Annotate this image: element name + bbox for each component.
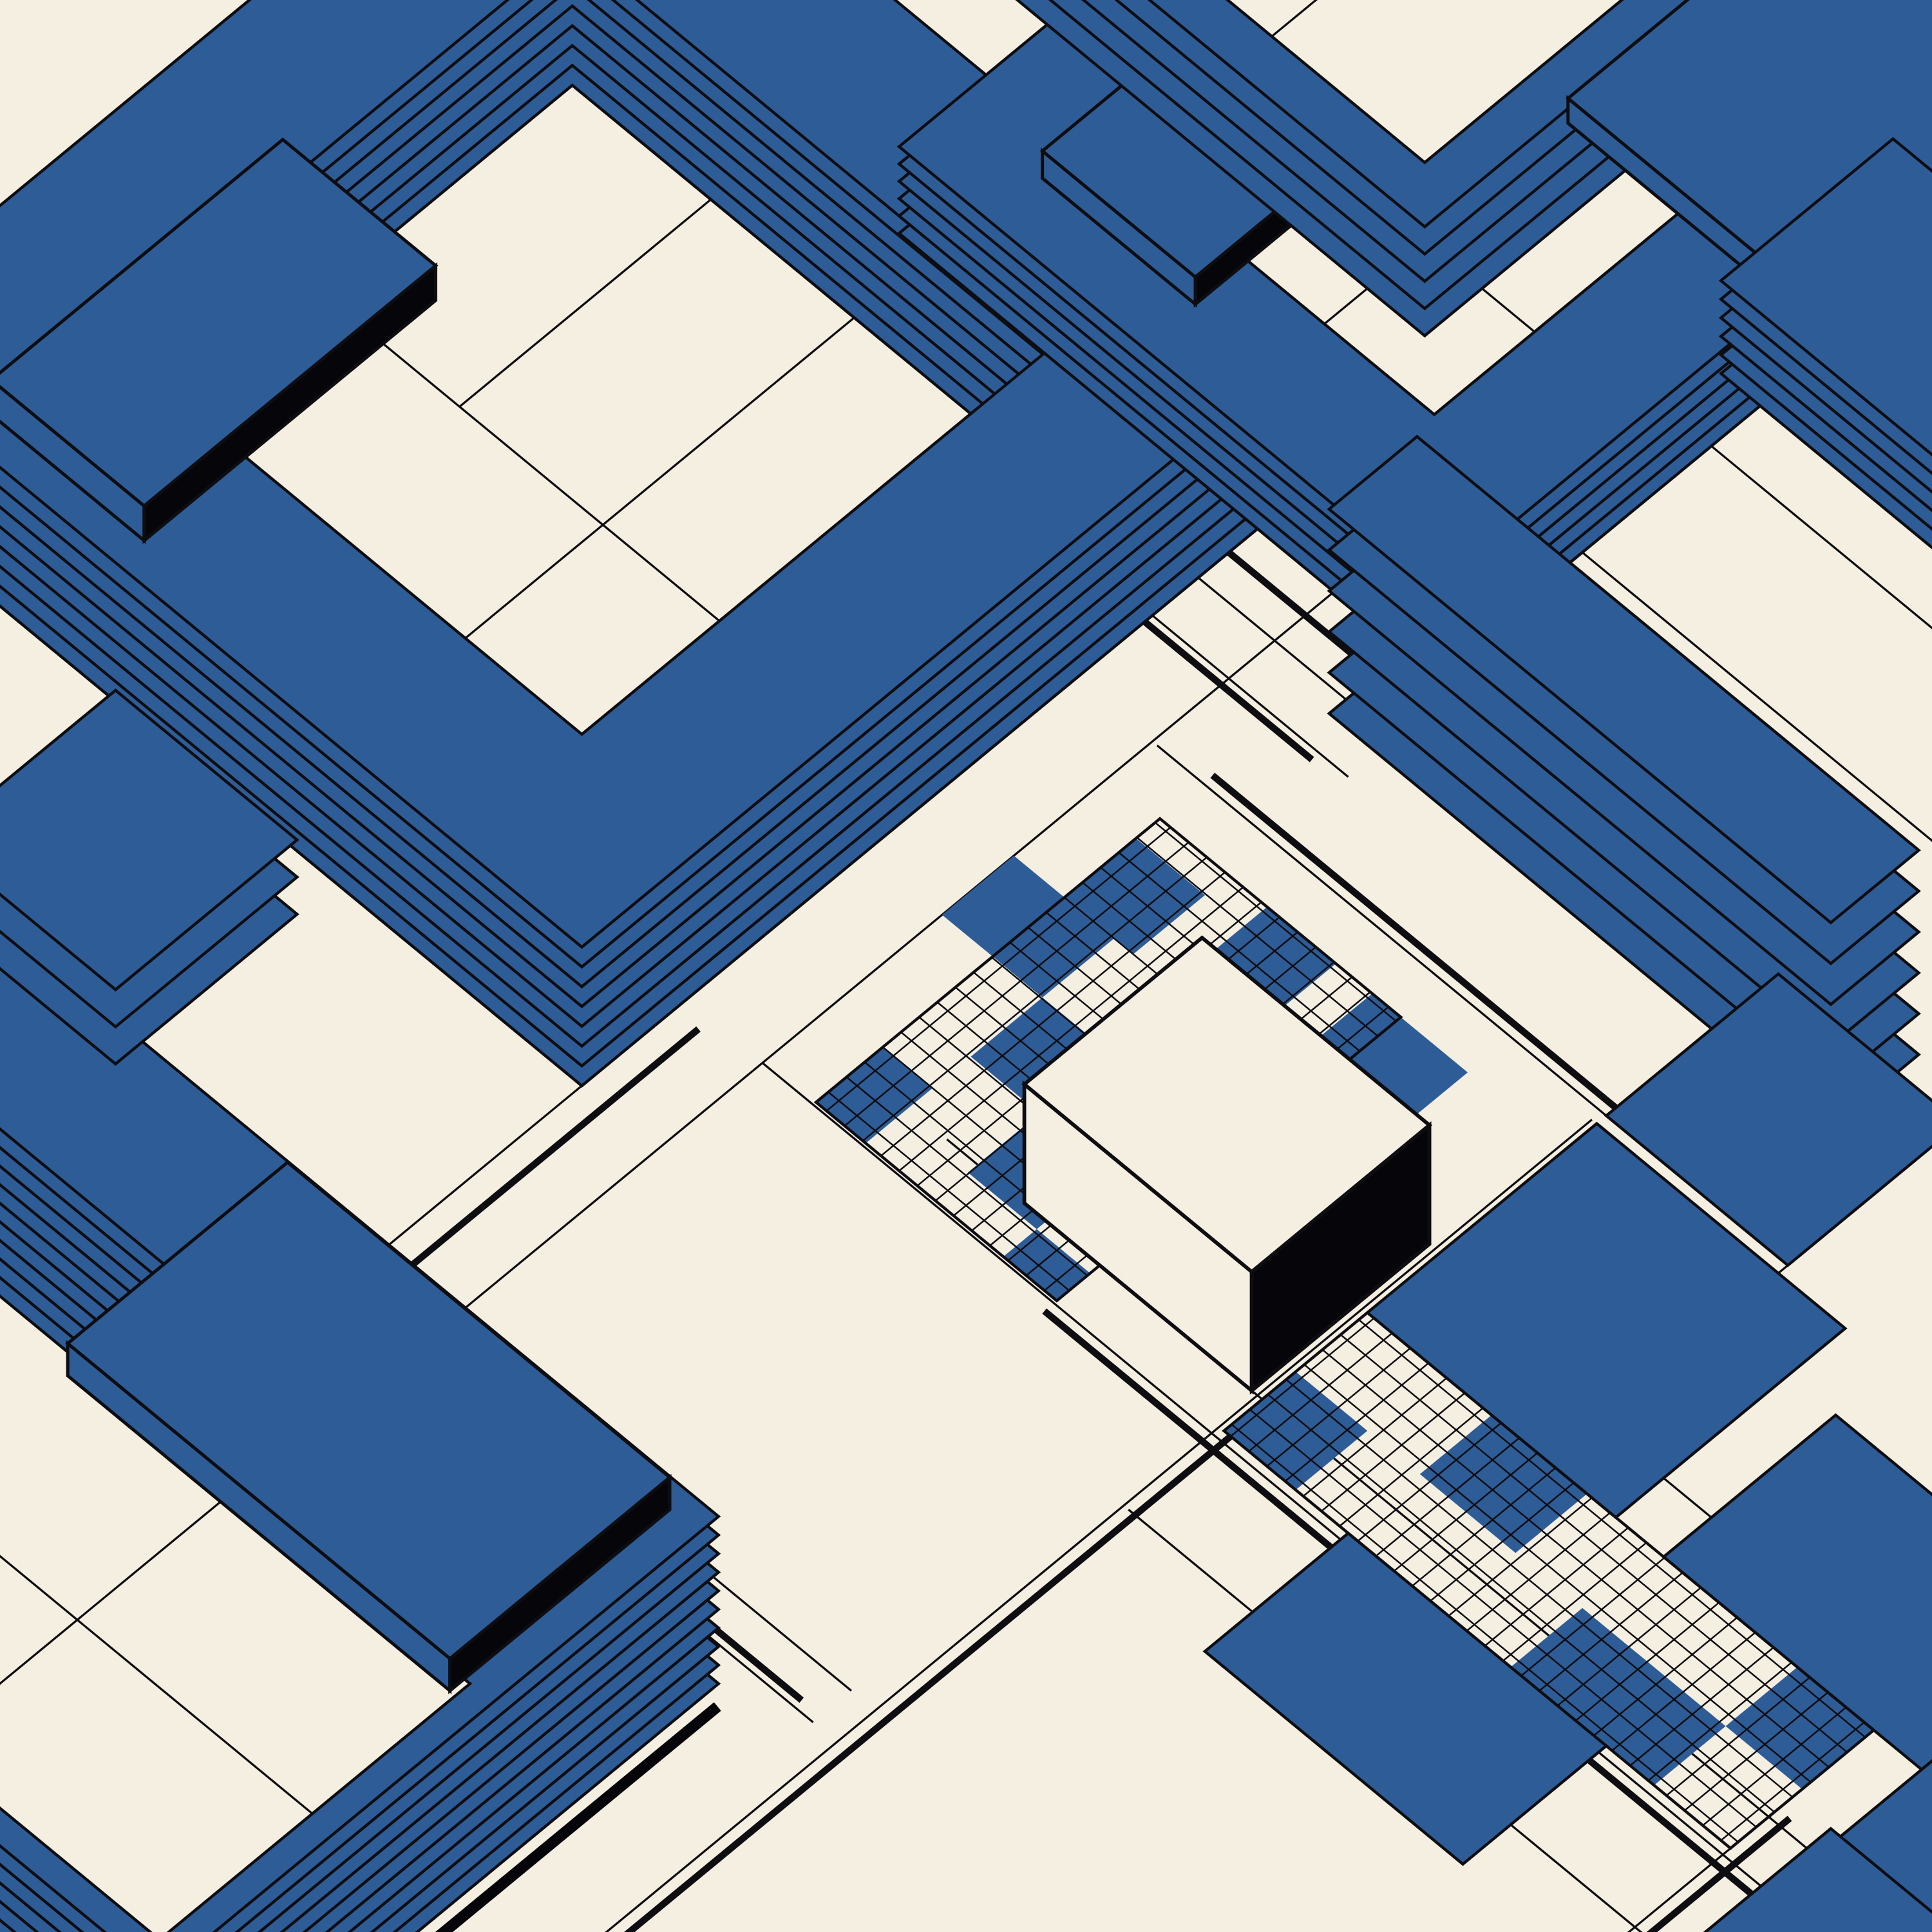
axonometric-city-artwork <box>0 0 1932 1932</box>
scene-svg <box>0 0 1932 1932</box>
